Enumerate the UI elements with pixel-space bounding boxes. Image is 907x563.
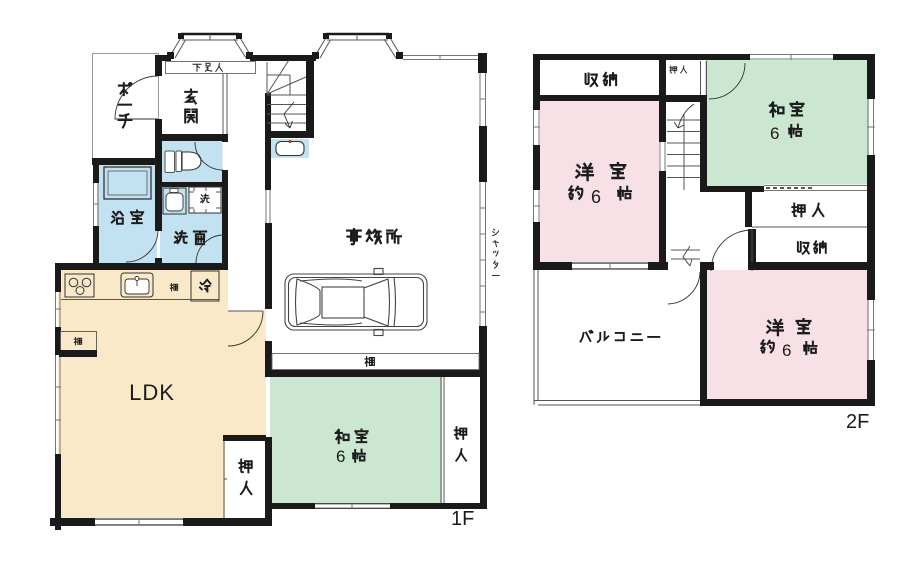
svg-text:6: 6 bbox=[591, 187, 601, 207]
svg-text:2F: 2F bbox=[846, 411, 869, 433]
svg-text:6: 6 bbox=[782, 341, 791, 360]
svg-text:6: 6 bbox=[770, 124, 779, 143]
svg-text:1F: 1F bbox=[451, 508, 474, 530]
svg-text:LDK: LDK bbox=[129, 380, 175, 405]
svg-text:6: 6 bbox=[336, 447, 345, 466]
